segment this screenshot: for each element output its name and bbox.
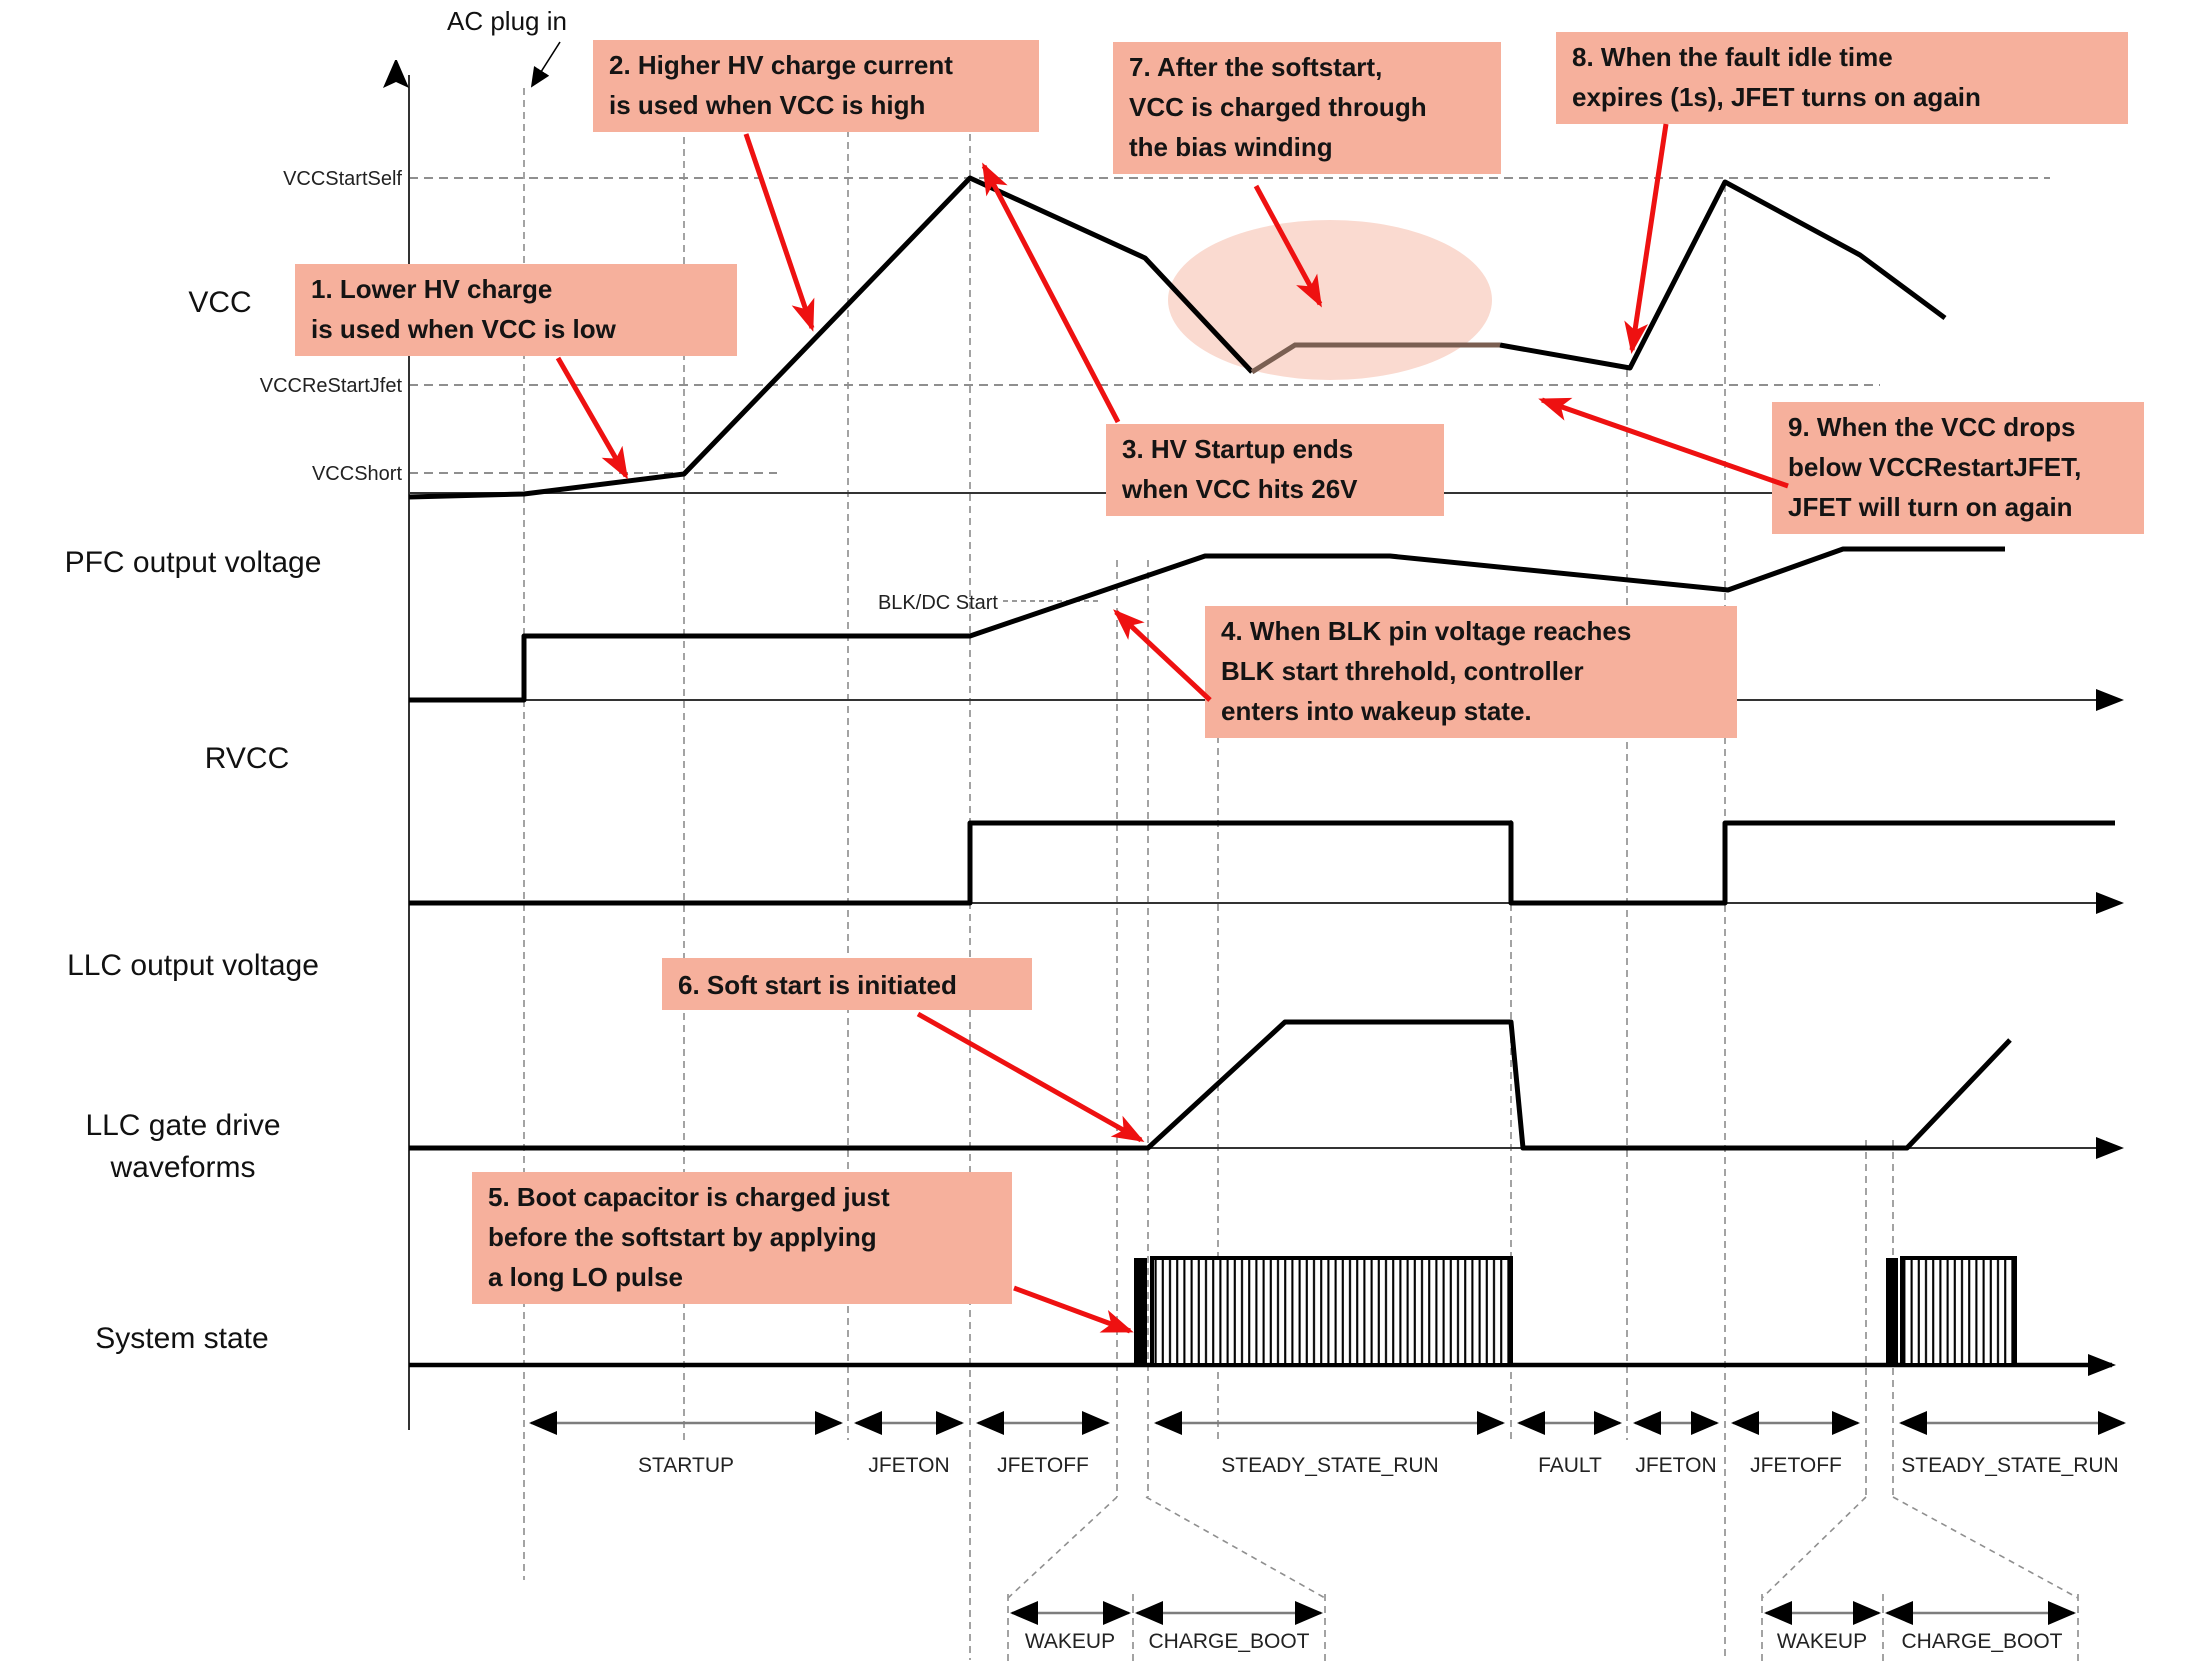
detail-label-wakeup-2: WAKEUP: [1777, 1630, 1867, 1653]
row-label-pfc: PFC output voltage: [65, 546, 322, 579]
vccstartself-label: VCCStartSelf: [283, 168, 402, 190]
state-label-fault: FAULT: [1538, 1454, 1602, 1477]
annotation-9-line-3: JFET will turn on again: [1788, 492, 2073, 522]
annotation-8: 8. When the fault idle time expires (1s)…: [1556, 32, 2128, 124]
bias-winding-highlight-ellipse: [1168, 220, 1492, 380]
annotation-7-line-3: the bias winding: [1129, 132, 1333, 162]
llc-gate-burst-2: [1902, 1258, 2015, 1365]
system-state-row: STARTUP JFETON JFETOFF STEADY_STATE_RUN …: [531, 1423, 2124, 1477]
annotation-4-arrow: [1116, 612, 1210, 700]
row-label-llc-out: LLC output voltage: [67, 949, 319, 982]
annotation-4: 4. When BLK pin voltage reaches BLK star…: [1205, 606, 1737, 738]
annotation-1-arrow: [558, 358, 626, 476]
state-label-jfetoff-1: JFETOFF: [997, 1454, 1089, 1477]
annotation-2: 2. Higher HV charge current is used when…: [593, 40, 1039, 132]
fan-right-2: [1893, 1497, 2078, 1598]
annotation-1-line-2: is used when VCC is low: [311, 314, 617, 344]
annotation-8-line-1: 8. When the fault idle time: [1572, 42, 1893, 72]
annotation-7: 7. After the softstart, VCC is charged t…: [1113, 42, 1501, 174]
annotation-2-arrow: [746, 134, 812, 328]
row-label-rvcc: RVCC: [205, 742, 289, 775]
annotation-9: 9. When the VCC drops below VCCRestartJF…: [1772, 402, 2144, 534]
state-label-steady-1: STEADY_STATE_RUN: [1221, 1454, 1438, 1477]
annotation-5-line-2: before the softstart by applying: [488, 1222, 877, 1252]
annotation-5: 5. Boot capacitor is charged just before…: [472, 1172, 1012, 1304]
annotation-9-arrow: [1542, 400, 1788, 486]
annotation-5-line-1: 5. Boot capacitor is charged just: [488, 1182, 890, 1212]
fan-right-1: [1146, 1497, 1325, 1598]
annotation-8-line-2: expires (1s), JFET turns on again: [1572, 82, 1981, 112]
annotation-4-line-3: enters into wakeup state.: [1221, 696, 1532, 726]
state-detail-rows: WAKEUP CHARGE_BOOT WAKEUP CHARGE_BOOT: [1008, 1497, 2078, 1662]
llc-out-trace: [409, 1022, 2010, 1148]
annotation-6: 6. Soft start is initiated: [662, 958, 1032, 1010]
annotation-5-arrow: [1014, 1288, 1130, 1331]
fan-left-2: [1762, 1497, 1866, 1598]
annotation-7-line-2: VCC is charged through: [1129, 92, 1427, 122]
timing-diagram-page: STARTUP JFETON JFETOFF STEADY_STATE_RUN …: [0, 0, 2209, 1674]
row-label-system-state: System state: [95, 1322, 268, 1355]
ac-plug-in-arrow: [532, 42, 560, 86]
row-label-texts: VCC PFC output voltage RVCC LLC output v…: [65, 286, 322, 1355]
annotation-1-line-1: 1. Lower HV charge: [311, 274, 552, 304]
state-label-jfeton-1: JFETON: [868, 1454, 949, 1477]
state-label-steady-2: STEADY_STATE_RUN: [1901, 1454, 2118, 1477]
annotation-2-line-2: is used when VCC is high: [609, 90, 925, 120]
annotation-9-line-1: 9. When the VCC drops: [1788, 412, 2075, 442]
vccrestartjfet-label: VCCReStartJfet: [260, 375, 403, 397]
row-label-llc-gate-2: waveforms: [109, 1151, 255, 1184]
annotation-7-line-1: 7. After the softstart,: [1129, 52, 1382, 82]
state-label-jfetoff-2: JFETOFF: [1750, 1454, 1842, 1477]
llc-gate-long-lo-pulse: [1134, 1258, 1147, 1365]
fan-left-1: [1008, 1497, 1117, 1598]
detail-label-chargeboot-2: CHARGE_BOOT: [1901, 1630, 2062, 1653]
annotation-3-arrow: [984, 166, 1118, 422]
ac-plug-in-label: AC plug in: [447, 6, 567, 36]
annotation-3: 3. HV Startup ends when VCC hits 26V: [1106, 424, 1444, 516]
rvcc-trace: [409, 823, 2115, 903]
annotation-6-line-1: 6. Soft start is initiated: [678, 970, 957, 1000]
state-label-jfeton-2: JFETON: [1635, 1454, 1716, 1477]
detail-label-wakeup-1: WAKEUP: [1025, 1630, 1115, 1653]
detail-label-chargeboot-1: CHARGE_BOOT: [1148, 1630, 1309, 1653]
vcc-trace-right: [1500, 182, 1945, 368]
annotation-8-arrow: [1632, 124, 1666, 350]
annotation-4-line-1: 4. When BLK pin voltage reaches: [1221, 616, 1631, 646]
annotation-6-arrow: [918, 1014, 1141, 1140]
row-label-vcc: VCC: [188, 286, 251, 319]
annotation-5-line-3: a long LO pulse: [488, 1262, 683, 1292]
annotation-1: 1. Lower HV charge is used when VCC is l…: [295, 264, 737, 356]
annotation-2-line-1: 2. Higher HV charge current: [609, 50, 953, 80]
annotation-boxes: 1. Lower HV charge is used when VCC is l…: [295, 32, 2144, 1304]
llc-gate-burst-1: [1152, 1258, 1511, 1365]
state-label-startup: STARTUP: [638, 1454, 734, 1477]
annotation-4-line-2: BLK start threhold, controller: [1221, 656, 1584, 686]
axis-label-texts: VCCStartSelf VCCReStartJfet VCCShort BLK…: [260, 168, 999, 614]
row-label-llc-gate-1: LLC gate drive: [85, 1109, 280, 1142]
timing-diagram: STARTUP JFETON JFETOFF STEADY_STATE_RUN …: [0, 0, 2209, 1674]
annotation-9-line-2: below VCCRestartJFET,: [1788, 452, 2081, 482]
annotation-3-line-2: when VCC hits 26V: [1121, 474, 1358, 504]
llc-gate-long-lo-pulse-2: [1886, 1258, 1898, 1365]
annotation-3-line-1: 3. HV Startup ends: [1122, 434, 1353, 464]
blk-dc-start-label: BLK/DC Start: [878, 592, 998, 614]
vccshort-label: VCCShort: [312, 463, 402, 485]
